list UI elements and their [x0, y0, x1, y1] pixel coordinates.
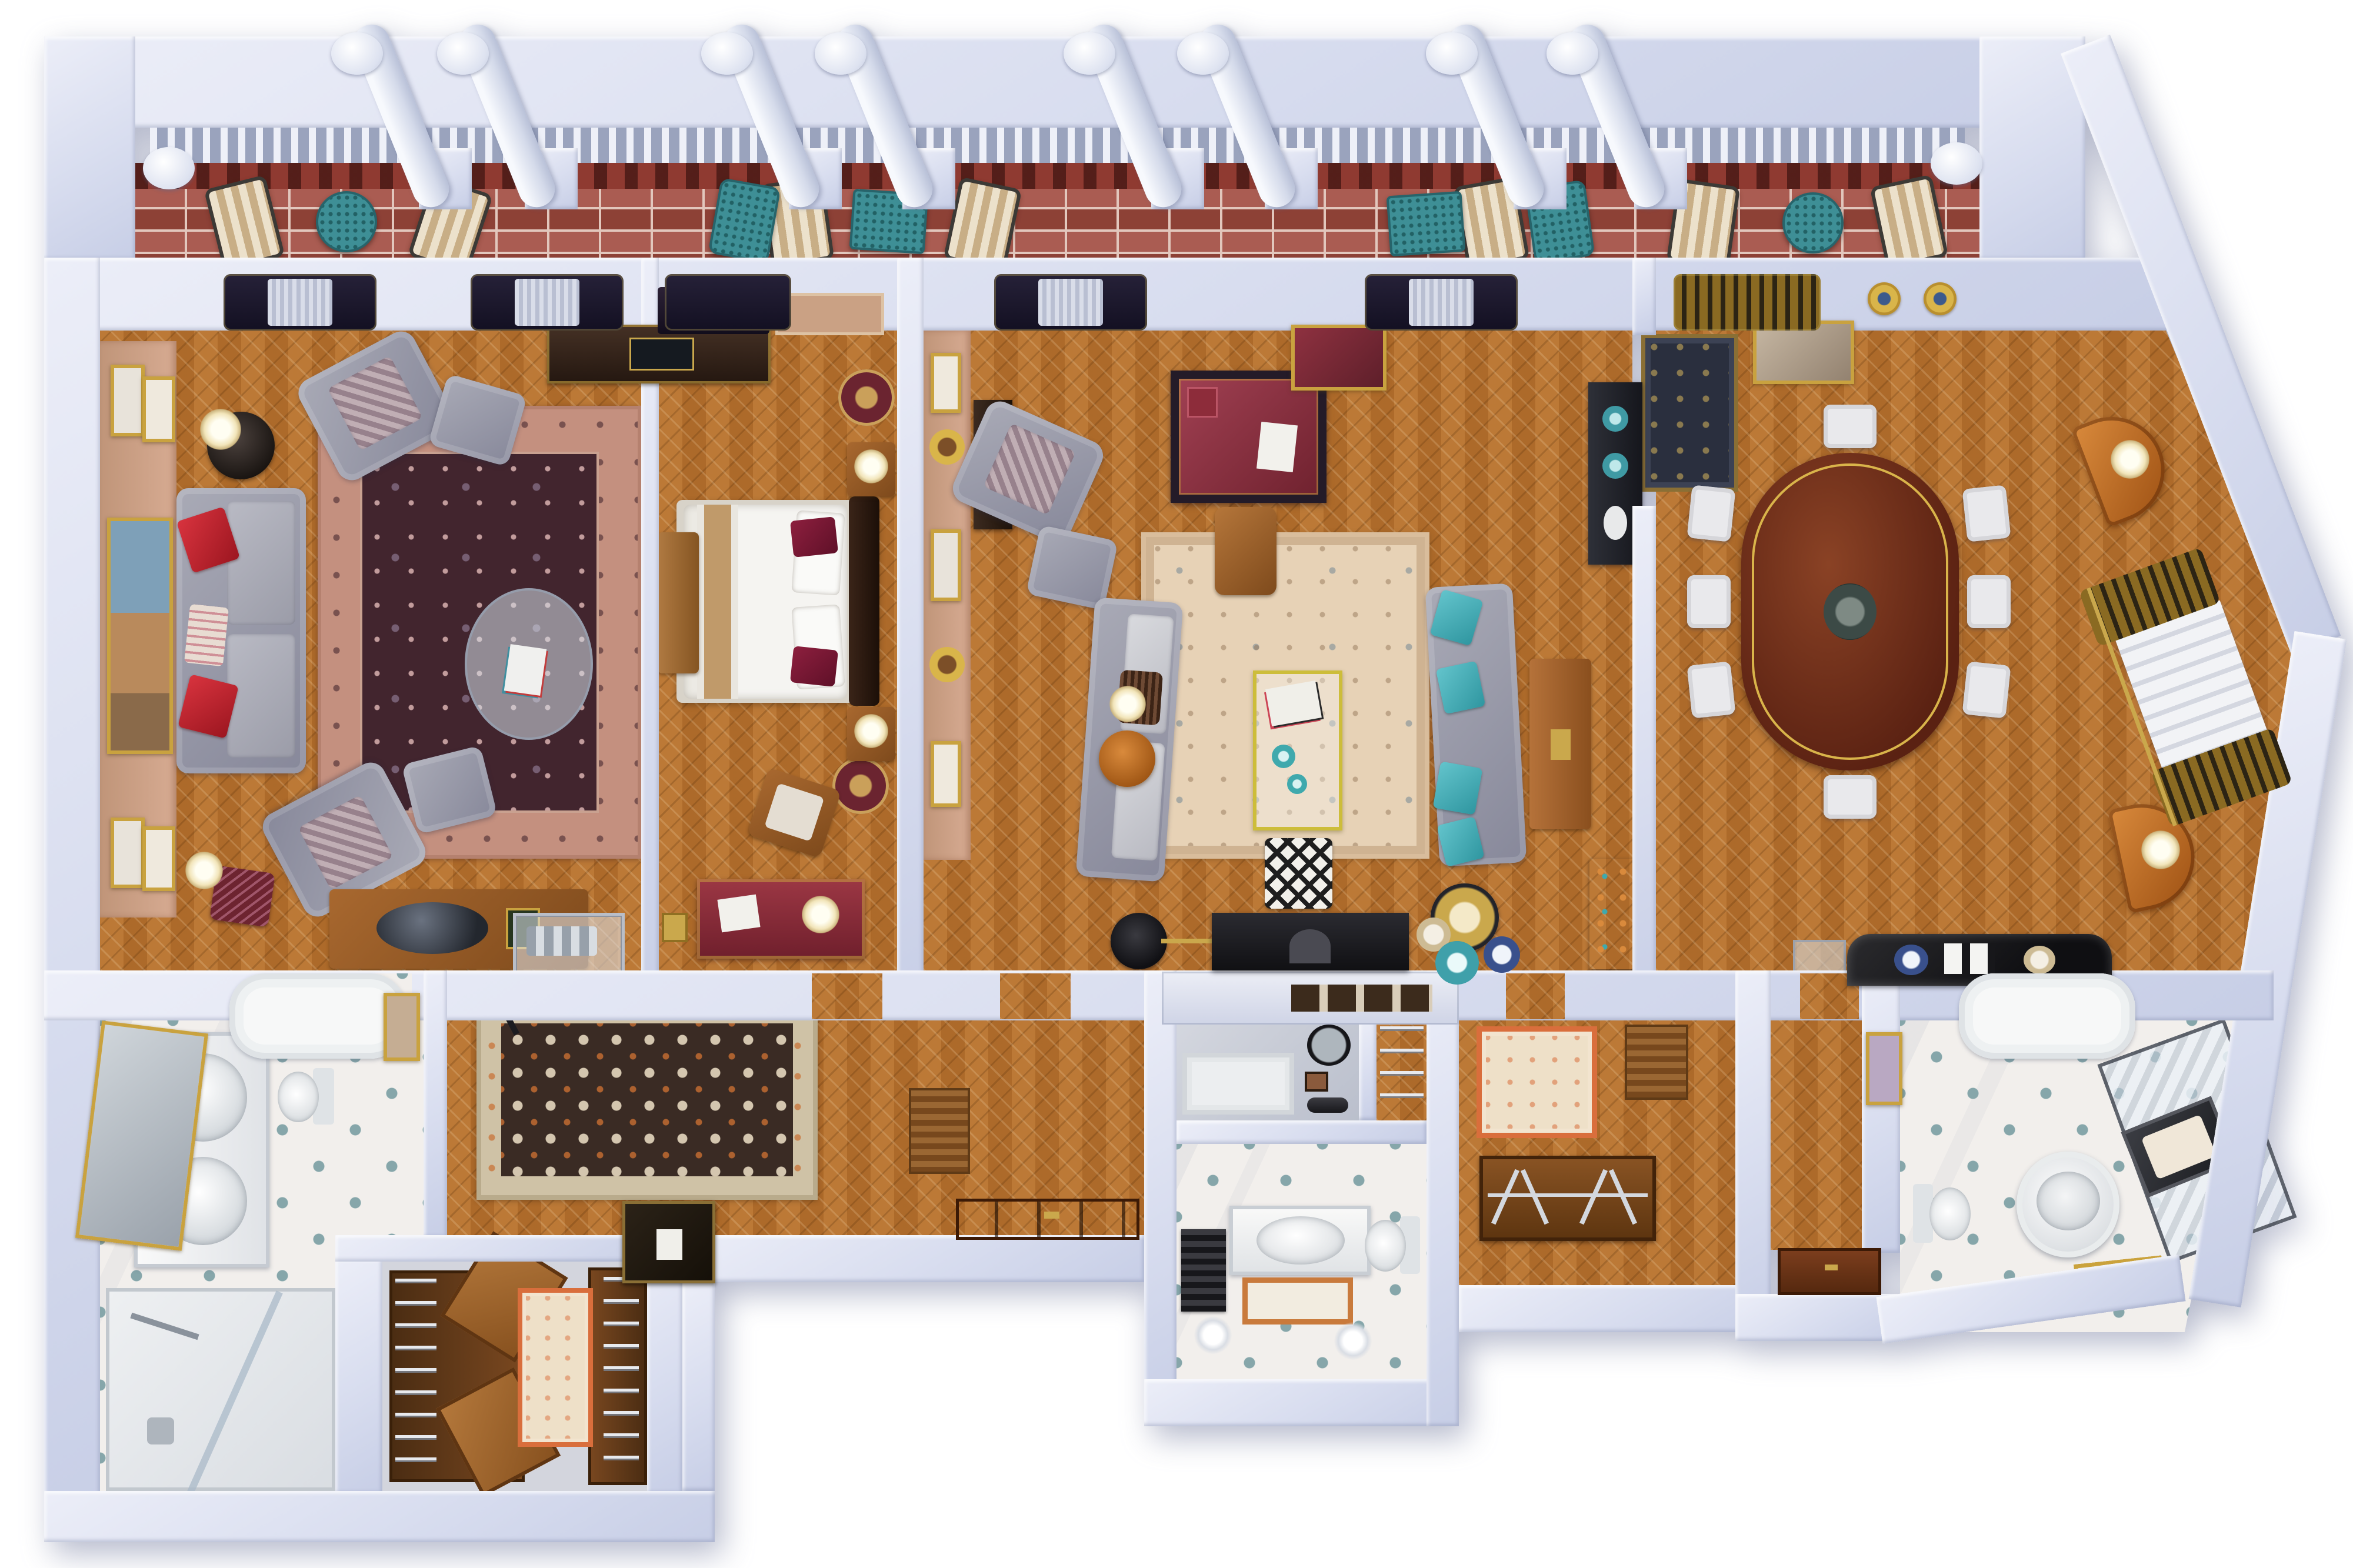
scalloped-vanity: [2017, 1152, 2119, 1257]
dresser-papers: [717, 895, 760, 933]
desk-box: [1187, 387, 1218, 418]
wardrobe-rug: [518, 1288, 593, 1447]
centerpiece: [1824, 583, 1877, 640]
cabinet-lamp: [2141, 830, 2180, 869]
framed-picture: [142, 826, 175, 891]
decorative-plate: [1435, 941, 1479, 985]
trolley-bottles: [526, 926, 597, 956]
wire-shelves: [395, 1279, 436, 1473]
oval-basin: [1257, 1216, 1345, 1265]
west-wall: [44, 258, 100, 1542]
doorway: [1000, 973, 1071, 1019]
terrace-column-capital: [1177, 32, 1229, 75]
lamp-arm: [1161, 939, 1214, 943]
towel-holder: [1307, 1097, 1348, 1113]
framed-picture: [931, 353, 961, 413]
powder-south-wall: [1144, 1379, 1459, 1426]
sofa-cushion: [227, 634, 295, 758]
window-sheer: [268, 279, 332, 326]
toilet: [1366, 1210, 1422, 1280]
decorative-plate: [1484, 936, 1520, 973]
shower-fixture: [130, 1313, 199, 1340]
window-curtains: [665, 274, 791, 331]
tv-stand: [1289, 929, 1331, 963]
bathtub: [229, 973, 406, 1059]
framed-picture: [1866, 1032, 1902, 1105]
entry-door: [956, 1199, 1139, 1240]
dressing-rug: [1477, 1026, 1597, 1138]
table-lamp: [200, 409, 241, 450]
bench-mat: [2141, 1115, 2217, 1180]
terrace-column-capital: [1547, 32, 1598, 75]
dressing-south-wall: [1459, 1285, 1771, 1332]
south-west-wall: [44, 1491, 715, 1542]
powder-east-wall: [1427, 970, 1459, 1426]
headboard: [849, 496, 879, 706]
armchair-cushion: [328, 355, 423, 451]
wire-shelving: [1380, 1026, 1424, 1116]
wardrobe-left: [389, 1270, 525, 1482]
wall-shower-closet: [335, 1259, 382, 1494]
sofa-cushion: [227, 501, 295, 625]
sconce-lamp: [1334, 1322, 1372, 1360]
drinks-trolley: [513, 913, 625, 976]
floor-plan-canvas: [0, 0, 2353, 1568]
dressing-east-wall: [1735, 970, 1771, 1332]
wire-shelves: [604, 1277, 639, 1476]
powder-vanity: [1229, 1206, 1371, 1275]
teal-pillow: [1433, 761, 1483, 815]
service-door: [1778, 1248, 1881, 1295]
slat-screen: [1625, 1025, 1688, 1100]
drum-side-table: [1099, 730, 1155, 787]
terrace-left-wall: [44, 36, 135, 260]
ceiling-rosette: [1924, 282, 1957, 315]
armchair-cushion: [983, 423, 1076, 515]
bath-hallway-east-wall: [1862, 970, 1900, 1253]
runner-field: [501, 1023, 793, 1176]
bath-mat: [1242, 1277, 1353, 1325]
brass-coffee-table: [1253, 670, 1342, 830]
floral-pillow: [184, 604, 229, 666]
bench-cross-leg: [1521, 1169, 1549, 1225]
wall-livingC-dining-upper: [1632, 258, 1656, 335]
round-rug: [838, 369, 895, 426]
bench-cross-leg: [1609, 1169, 1637, 1225]
bench-cross-leg: [1491, 1169, 1519, 1225]
tissue-box: [656, 1229, 682, 1260]
wardrobe-right: [588, 1267, 647, 1485]
shower-glass: [183, 1290, 283, 1503]
dresser: [697, 879, 865, 959]
teal-bowl: [1272, 745, 1295, 768]
corner-pilaster: [1931, 142, 1982, 185]
nightstand-lamp: [854, 714, 888, 748]
cabinet-lamp: [2111, 440, 2149, 479]
utility-powder-wall: [1176, 1120, 1427, 1144]
dining-chair: [1824, 775, 1877, 819]
wall-mirror: [1291, 325, 1387, 391]
gold-window-curtains: [1674, 274, 1821, 331]
dining-chair: [1687, 661, 1735, 718]
walk-in-shower: [106, 1288, 335, 1491]
framed-picture: [931, 529, 961, 601]
dining-chair: [1687, 575, 1731, 628]
dining-table: [1741, 453, 1959, 770]
table-magazines: [1265, 680, 1322, 726]
terrace-column-capital: [331, 32, 383, 75]
teal-vase: [1602, 453, 1628, 479]
disc-floor-lamp: [1111, 913, 1167, 969]
maroon-bolster: [790, 646, 838, 687]
dresser-lamp: [802, 896, 839, 933]
table-lamp: [1109, 686, 1146, 722]
hall-south-step: [682, 1282, 715, 1491]
framed-picture: [931, 741, 961, 807]
framed-print: [1305, 1072, 1328, 1092]
wall-livingC-dining-lower: [1632, 506, 1656, 1020]
terrace-column-capital: [1426, 32, 1478, 75]
terrace-column-capital: [1064, 32, 1115, 75]
media-console: [1162, 972, 1459, 1025]
teal-bowl: [1287, 774, 1307, 794]
bathtub: [1959, 973, 2135, 1059]
corner-pilaster: [143, 147, 195, 189]
runner-rug: [476, 1000, 818, 1200]
bath-hallway-floor: [1771, 1020, 1862, 1250]
magazines: [504, 644, 547, 696]
toilet: [278, 1063, 336, 1129]
dining-chair: [1687, 485, 1735, 542]
terrace-column-capital: [701, 32, 753, 75]
shower-tray: [1182, 1053, 1294, 1115]
large-painting: [107, 518, 173, 754]
console-plates: [1894, 945, 1928, 975]
terrace-round-table: [1782, 192, 1844, 253]
luggage-bench: [1479, 1156, 1656, 1241]
framed-picture: [111, 818, 145, 888]
framed-picture: [384, 993, 420, 1061]
vanity-basin: [2037, 1172, 2100, 1230]
console-handle: [1551, 729, 1571, 760]
bed-throw: [697, 505, 738, 699]
door-handle: [1044, 1212, 1059, 1219]
console-plates: [2024, 946, 2055, 974]
floor-plan: [0, 0, 2353, 1568]
framed-picture: [142, 376, 175, 442]
doorway: [812, 973, 882, 1019]
dining-chair: [1962, 485, 2011, 542]
console-drawers: [1291, 985, 1432, 1012]
dining-chair: [1824, 405, 1877, 448]
sconce-lamp: [1194, 1316, 1232, 1354]
terrace-column-capital: [437, 32, 489, 75]
shower-drain: [147, 1417, 174, 1444]
wall-bath-hall: [424, 970, 447, 1238]
window-sheer: [1409, 279, 1474, 326]
toilet-bowl: [278, 1072, 319, 1122]
side-console: [1529, 659, 1591, 829]
white-dish: [1604, 506, 1627, 540]
window-sheer: [515, 279, 579, 326]
gilt-medallion: [929, 429, 965, 465]
wall-panel: [775, 293, 884, 335]
terrace-rect-table: [1387, 191, 1466, 257]
slatted-bench: [1181, 1229, 1226, 1312]
service-door-wall: [1735, 1294, 1900, 1341]
television: [1212, 913, 1409, 970]
armchair-cushion: [298, 795, 393, 890]
ceiling-rosette: [1868, 282, 1901, 315]
foot-bench: [658, 532, 699, 673]
hall-chest: [622, 1201, 715, 1283]
bench-cross-leg: [1579, 1169, 1608, 1225]
utility-linen-stub: [1359, 1020, 1377, 1120]
zebra-pouf: [1265, 838, 1332, 909]
oval-coffee-table: [465, 588, 593, 740]
dining-chair: [1962, 661, 2011, 718]
nightstand-lamp: [854, 449, 888, 483]
hall-south-wall: [682, 1235, 1144, 1282]
framed-picture: [111, 365, 145, 436]
slat-screen: [909, 1088, 970, 1174]
toilet: [1911, 1179, 1969, 1250]
toilet-bowl: [1365, 1220, 1406, 1272]
desk-tray: [376, 902, 488, 954]
dining-chair: [1967, 575, 2011, 628]
gilt-medallion: [929, 647, 965, 682]
desk-blotter: [1257, 422, 1298, 472]
navy-gold-rug: [1641, 334, 1738, 492]
door-handle: [1825, 1265, 1838, 1270]
wall-bedroom-livingC: [897, 258, 924, 1020]
sideboard-tray: [629, 338, 694, 371]
toilet-bowl: [1929, 1187, 1971, 1240]
terrace-column-capital: [815, 32, 866, 75]
bed: [676, 500, 879, 703]
gold-clock-box: [662, 913, 688, 942]
desk-chair: [1215, 507, 1277, 595]
round-rug: [832, 758, 889, 814]
window-sheer: [1038, 279, 1103, 326]
table-lamp: [185, 852, 223, 889]
chair-pad: [764, 783, 824, 842]
maroon-bolster: [790, 516, 838, 558]
teal-vase: [1602, 406, 1628, 432]
powder-west-wall: [1144, 970, 1176, 1423]
console-frames: [1944, 943, 1995, 974]
terrace-round-table: [316, 191, 377, 252]
round-mirror: [1307, 1025, 1351, 1066]
doorway: [1506, 973, 1565, 1019]
